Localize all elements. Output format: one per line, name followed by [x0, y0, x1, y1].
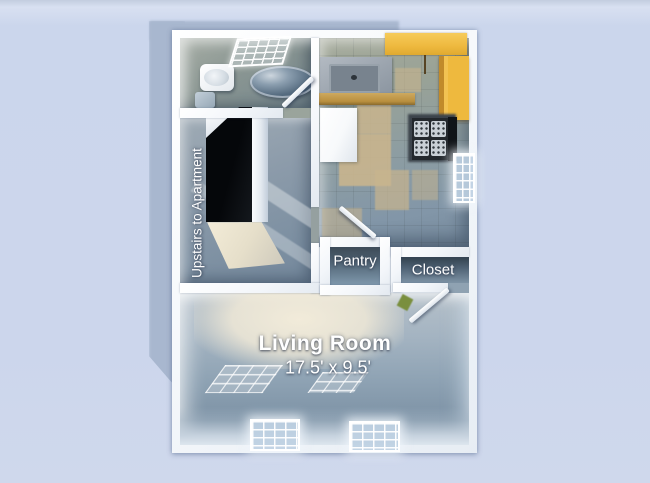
living-room-window-right — [349, 421, 400, 452]
sink-drain — [351, 75, 357, 80]
closet-label: Closet — [412, 262, 455, 279]
kitchen-window — [453, 153, 475, 203]
kitchen-sink-counter — [320, 57, 392, 95]
burner — [431, 121, 446, 137]
cabinet-right-run — [439, 56, 469, 120]
wall-living-room-north — [180, 283, 330, 293]
burner — [414, 121, 429, 137]
stair-enclosure-wall — [252, 107, 268, 222]
floor-plan-scene: Upstairs to Apartment Pantry Closet Livi… — [0, 0, 650, 483]
burner — [431, 140, 446, 156]
burner — [414, 140, 429, 156]
living-room-label: Living Room — [259, 332, 392, 356]
stove — [412, 118, 448, 160]
wall-pantry-south — [320, 285, 390, 295]
kitchen-sink-basin — [329, 64, 380, 93]
sink-bowl — [204, 69, 229, 86]
counter-front-panel — [318, 93, 415, 105]
toilet — [195, 92, 215, 108]
closet-doorway — [448, 283, 469, 293]
refrigerator — [320, 108, 357, 162]
floor-tile — [357, 100, 391, 134]
bathroom-doorway — [283, 108, 311, 118]
floor-plan: Upstairs to Apartment Pantry Closet Livi… — [172, 30, 477, 453]
wall-central-upper — [311, 38, 319, 207]
wall-closet-south — [393, 283, 448, 292]
floor-tile — [412, 170, 438, 200]
cabinet-top-run — [385, 33, 467, 55]
stairs-label: Upstairs to Apartment — [190, 148, 205, 278]
wall-bathroom-south — [180, 108, 283, 118]
living-room-window-left — [250, 419, 300, 451]
hall-doorway — [311, 207, 319, 243]
living-room-dimensions: 17.5' x 9.5' — [285, 358, 371, 379]
bathroom-window — [228, 36, 292, 68]
floor-tile — [375, 170, 409, 210]
bathroom-sink — [200, 64, 234, 91]
wall-closet-north — [391, 247, 469, 257]
south-wall-face — [180, 407, 469, 445]
pantry-label: Pantry — [333, 253, 376, 270]
